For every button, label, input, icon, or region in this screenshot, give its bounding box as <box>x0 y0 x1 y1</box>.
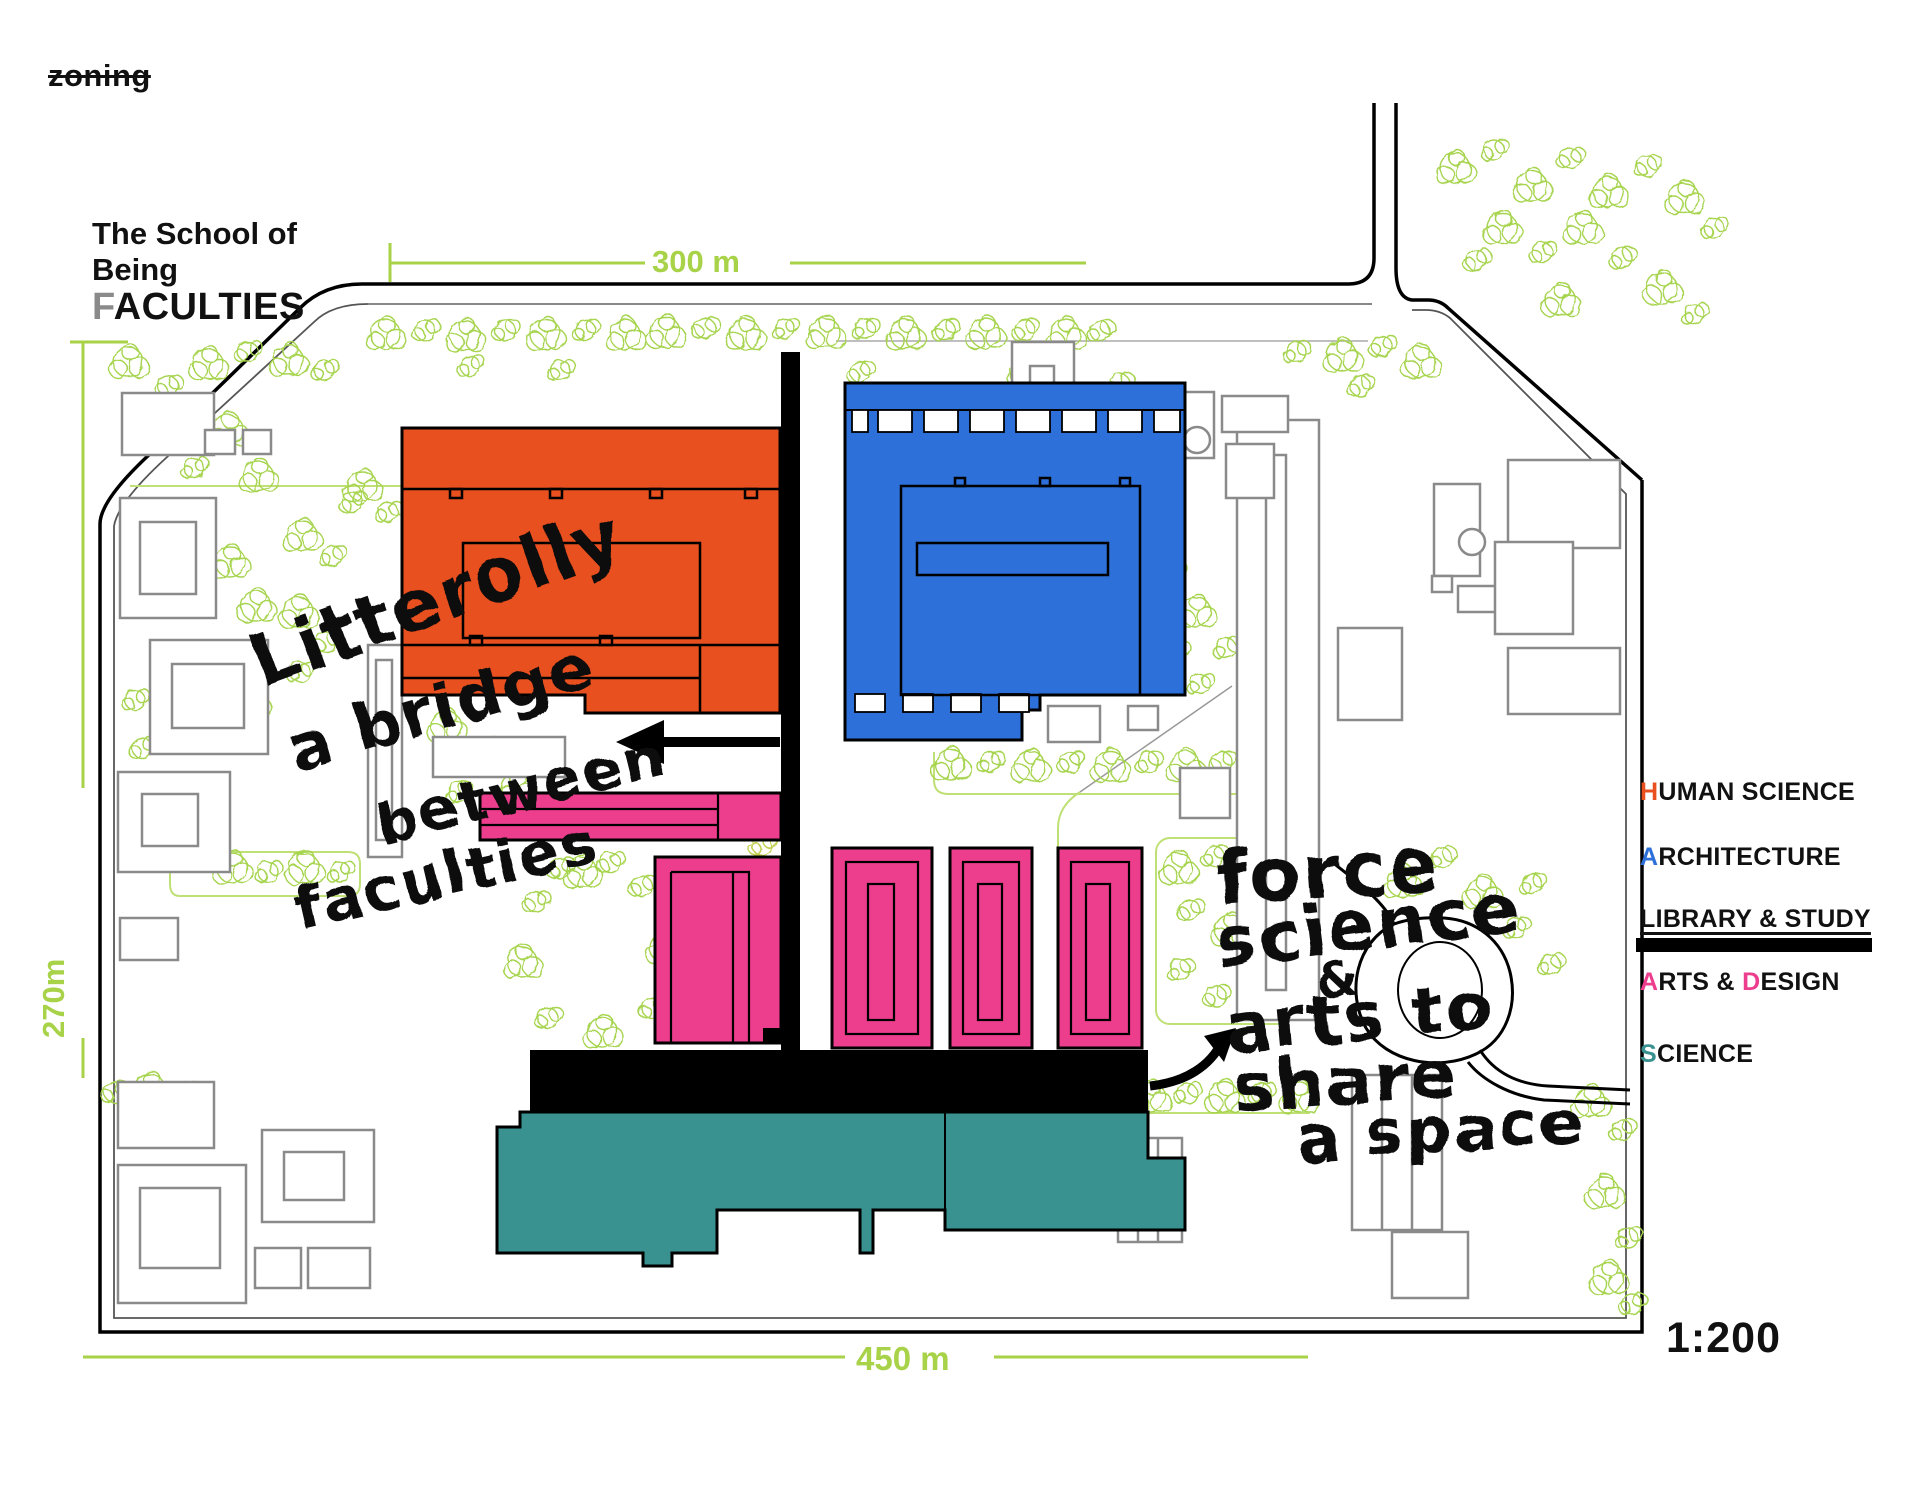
legend-science-letter: S <box>1640 1040 1657 1068</box>
legend-library-study-label: LIBRARY & STUDY <box>1640 905 1871 933</box>
faculties-rest: ACULTIES <box>114 286 305 328</box>
library-bridge-bar <box>781 352 800 1052</box>
faculties-first-letter: F <box>92 286 114 328</box>
arts-design-tower-west <box>655 857 781 1043</box>
legend-human-science-letter: H <box>1640 778 1658 806</box>
arrow-curved <box>1150 1028 1236 1086</box>
legend-architecture: ARCHITECTURE <box>1640 843 1841 872</box>
legend-arts-mid: RTS & <box>1658 968 1742 996</box>
dimension-bottom-label: 450 m <box>856 1340 950 1378</box>
legend-library-study: LIBRARY & STUDY <box>1640 905 1871 934</box>
building-science <box>497 1112 1185 1266</box>
page-tag-zoning: zoning <box>48 58 151 94</box>
science-footprint <box>497 1112 1185 1266</box>
legend-architecture-rest: RCHITECTURE <box>1658 843 1840 871</box>
title-line2: Being <box>92 252 178 288</box>
annotation-share-note: force science & arts to share a space <box>1210 822 1586 1178</box>
legend-design-rest: ESIGN <box>1760 968 1839 996</box>
building-architecture <box>845 383 1185 740</box>
legend-design-letter: D <box>1742 968 1760 996</box>
legend-science: SCIENCE <box>1640 1040 1753 1069</box>
legend-human-science: HUMAN SCIENCE <box>1640 778 1855 807</box>
library-main-bar <box>530 1050 1148 1112</box>
legend-arts-letter: A <box>1640 968 1658 996</box>
dimension-left-label: 270m <box>36 959 72 1038</box>
legend-science-rest: CIENCE <box>1657 1040 1753 1068</box>
title-line1: The School of <box>92 216 297 252</box>
annotation-bridge-note: Litterolly a bridge between faculties <box>239 492 673 945</box>
legend-library-study-bar <box>1636 938 1872 952</box>
architecture-footprint <box>845 383 1185 740</box>
dimension-top-label: 300 m <box>652 244 740 280</box>
title-faculties: FACULTIES <box>92 286 305 329</box>
legend-architecture-letter: A <box>1640 843 1658 871</box>
legend-human-science-rest: UMAN SCIENCE <box>1658 778 1855 806</box>
scale-label: 1:200 <box>1666 1314 1781 1363</box>
zoning-diagram: Litterolly a bridge between faculties fo… <box>0 0 1920 1498</box>
legend-arts-design: ARTS & DESIGN <box>1640 968 1840 997</box>
